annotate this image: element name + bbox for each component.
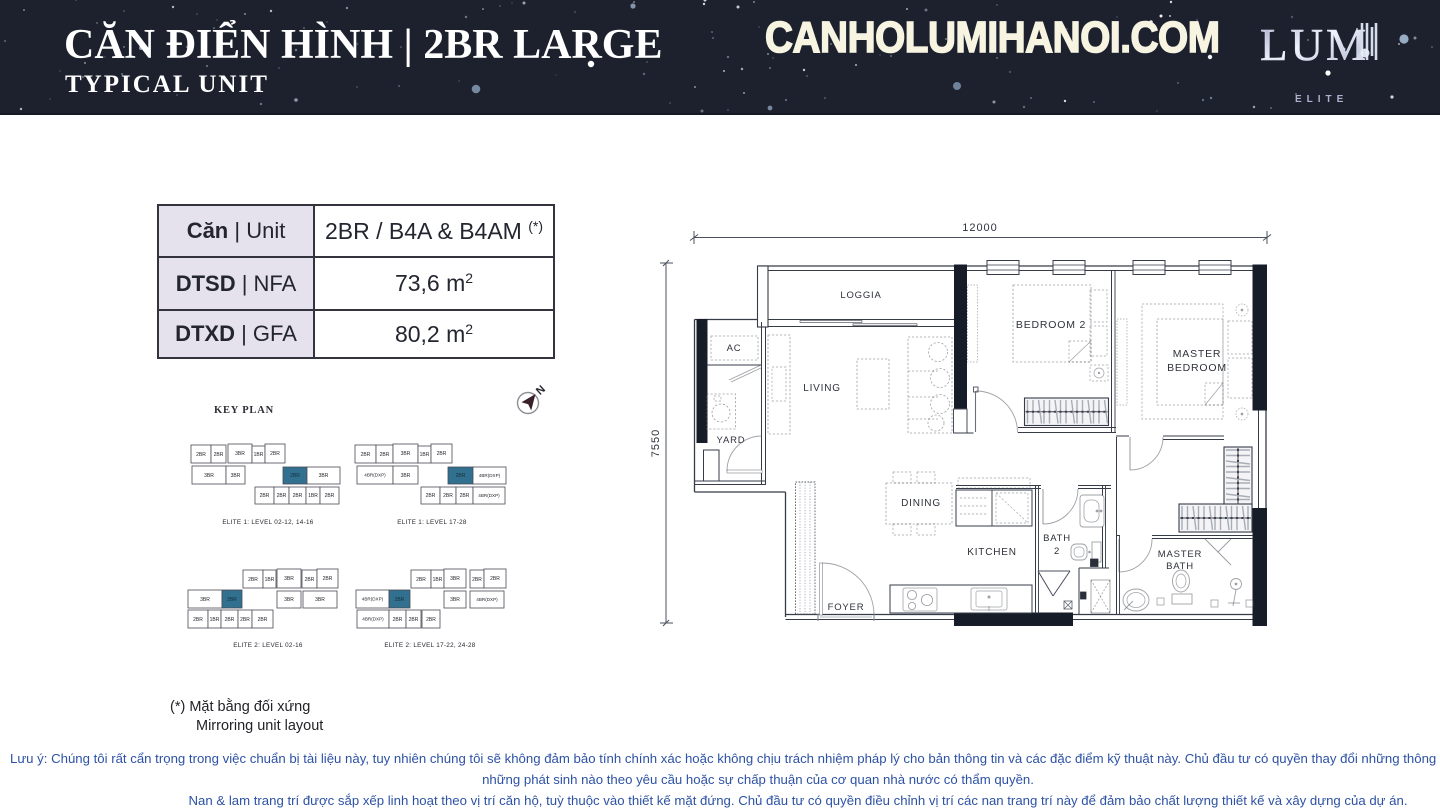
- svg-text:3BR: 3BR: [284, 576, 294, 582]
- svg-text:7550: 7550: [650, 429, 662, 457]
- svg-text:4BR(DXP): 4BR(DXP): [478, 493, 500, 498]
- svg-text:3BR: 3BR: [315, 597, 325, 603]
- svg-text:2BR: 2BR: [456, 473, 466, 479]
- svg-text:2: 2: [1054, 546, 1060, 557]
- svg-text:2BR: 2BR: [214, 452, 224, 458]
- svg-text:3BR: 3BR: [235, 451, 245, 457]
- svg-text:2BR: 2BR: [361, 452, 371, 458]
- svg-text:3BR: 3BR: [284, 597, 294, 603]
- svg-text:3BR: 3BR: [204, 473, 214, 479]
- svg-text:MASTER: MASTER: [1158, 549, 1202, 560]
- svg-text:2BR: 2BR: [258, 617, 268, 623]
- svg-text:ELITE 2: LEVEL 02-16: ELITE 2: LEVEL 02-16: [233, 642, 303, 649]
- svg-text:2BR: 2BR: [426, 493, 436, 499]
- svg-text:3BR: 3BR: [401, 473, 411, 479]
- svg-text:2BR: 2BR: [380, 452, 390, 458]
- svg-text:1BR: 1BR: [433, 577, 443, 583]
- svg-text:2BR: 2BR: [490, 576, 500, 582]
- svg-text:3BR: 3BR: [450, 597, 460, 603]
- svg-text:2BR: 2BR: [437, 451, 447, 457]
- svg-text:ELITE: ELITE: [1295, 94, 1348, 105]
- svg-text:2BR: 2BR: [395, 597, 405, 603]
- svg-text:(*) Mặt bằng đối xứng: (*) Mặt bằng đối xứng: [170, 698, 310, 715]
- svg-text:ELITE 1: LEVEL 17-28: ELITE 1: LEVEL 17-28: [397, 519, 467, 526]
- svg-text:YARD: YARD: [717, 435, 746, 446]
- svg-text:2BR: 2BR: [472, 577, 482, 583]
- svg-text:1BR: 1BR: [265, 577, 275, 583]
- svg-text:2BR: 2BR: [240, 617, 250, 623]
- svg-text:2BR: 2BR: [277, 493, 287, 499]
- svg-text:4BR(DXP): 4BR(DXP): [476, 597, 498, 602]
- svg-text:BEDROOM 2: BEDROOM 2: [1016, 319, 1086, 331]
- svg-text:KEY PLAN: KEY PLAN: [214, 405, 274, 416]
- svg-text:2BR: 2BR: [290, 473, 300, 479]
- svg-text:12000: 12000: [962, 222, 998, 234]
- svg-text:MASTER: MASTER: [1173, 348, 1222, 360]
- svg-text:2BR: 2BR: [225, 617, 235, 623]
- svg-text:LOGGIA: LOGGIA: [840, 290, 881, 301]
- svg-text:2BR: 2BR: [196, 452, 206, 458]
- svg-text:2BR: 2BR: [426, 617, 436, 623]
- svg-text:FOYER: FOYER: [828, 602, 865, 613]
- svg-text:2BR: 2BR: [193, 617, 203, 623]
- svg-text:2BR: 2BR: [248, 577, 258, 583]
- svg-text:2BR: 2BR: [270, 451, 280, 457]
- svg-text:AC: AC: [727, 343, 742, 354]
- svg-text:2BR: 2BR: [460, 493, 470, 499]
- svg-text:DINING: DINING: [901, 498, 941, 509]
- svg-text:2BR: 2BR: [323, 576, 333, 582]
- svg-text:3BR: 3BR: [231, 473, 241, 479]
- svg-text:4BR(DXP): 4BR(DXP): [362, 617, 384, 622]
- svg-text:BATH: BATH: [1043, 533, 1071, 544]
- svg-text:2BR: 2BR: [409, 617, 419, 623]
- svg-text:Mirroring unit layout: Mirroring unit layout: [196, 718, 323, 734]
- svg-text:3BR: 3BR: [319, 473, 329, 479]
- svg-text:4BR(DXP): 4BR(DXP): [362, 597, 384, 602]
- svg-text:1BR: 1BR: [420, 452, 430, 458]
- svg-text:2BR: 2BR: [416, 577, 426, 583]
- svg-text:2BR: 2BR: [227, 597, 237, 603]
- svg-text:2BR: 2BR: [325, 493, 335, 499]
- svg-text:KITCHEN: KITCHEN: [967, 547, 1017, 558]
- svg-text:2BR: 2BR: [393, 617, 403, 623]
- svg-text:4BR(DXP): 4BR(DXP): [364, 473, 386, 478]
- svg-text:ELITE 1: LEVEL 02-12, 14-16: ELITE 1: LEVEL 02-12, 14-16: [222, 519, 313, 526]
- svg-text:2BR: 2BR: [443, 493, 453, 499]
- svg-text:1BR: 1BR: [210, 617, 220, 623]
- svg-text:1BR: 1BR: [254, 452, 264, 458]
- svg-text:LUM: LUM: [1260, 20, 1369, 70]
- svg-text:2BR: 2BR: [305, 577, 315, 583]
- svg-text:2BR: 2BR: [293, 493, 303, 499]
- svg-text:ELITE 2: LEVEL 17-22, 24-28: ELITE 2: LEVEL 17-22, 24-28: [384, 642, 475, 649]
- svg-text:3BR: 3BR: [450, 576, 460, 582]
- svg-text:2BR: 2BR: [260, 493, 270, 499]
- svg-text:3BR: 3BR: [401, 451, 411, 457]
- svg-text:4BR(DXP): 4BR(DXP): [479, 473, 501, 478]
- svg-text:BEDROOM: BEDROOM: [1167, 362, 1227, 374]
- svg-text:1BR: 1BR: [308, 493, 318, 499]
- svg-text:3BR: 3BR: [200, 597, 210, 603]
- svg-text:LIVING: LIVING: [803, 383, 841, 394]
